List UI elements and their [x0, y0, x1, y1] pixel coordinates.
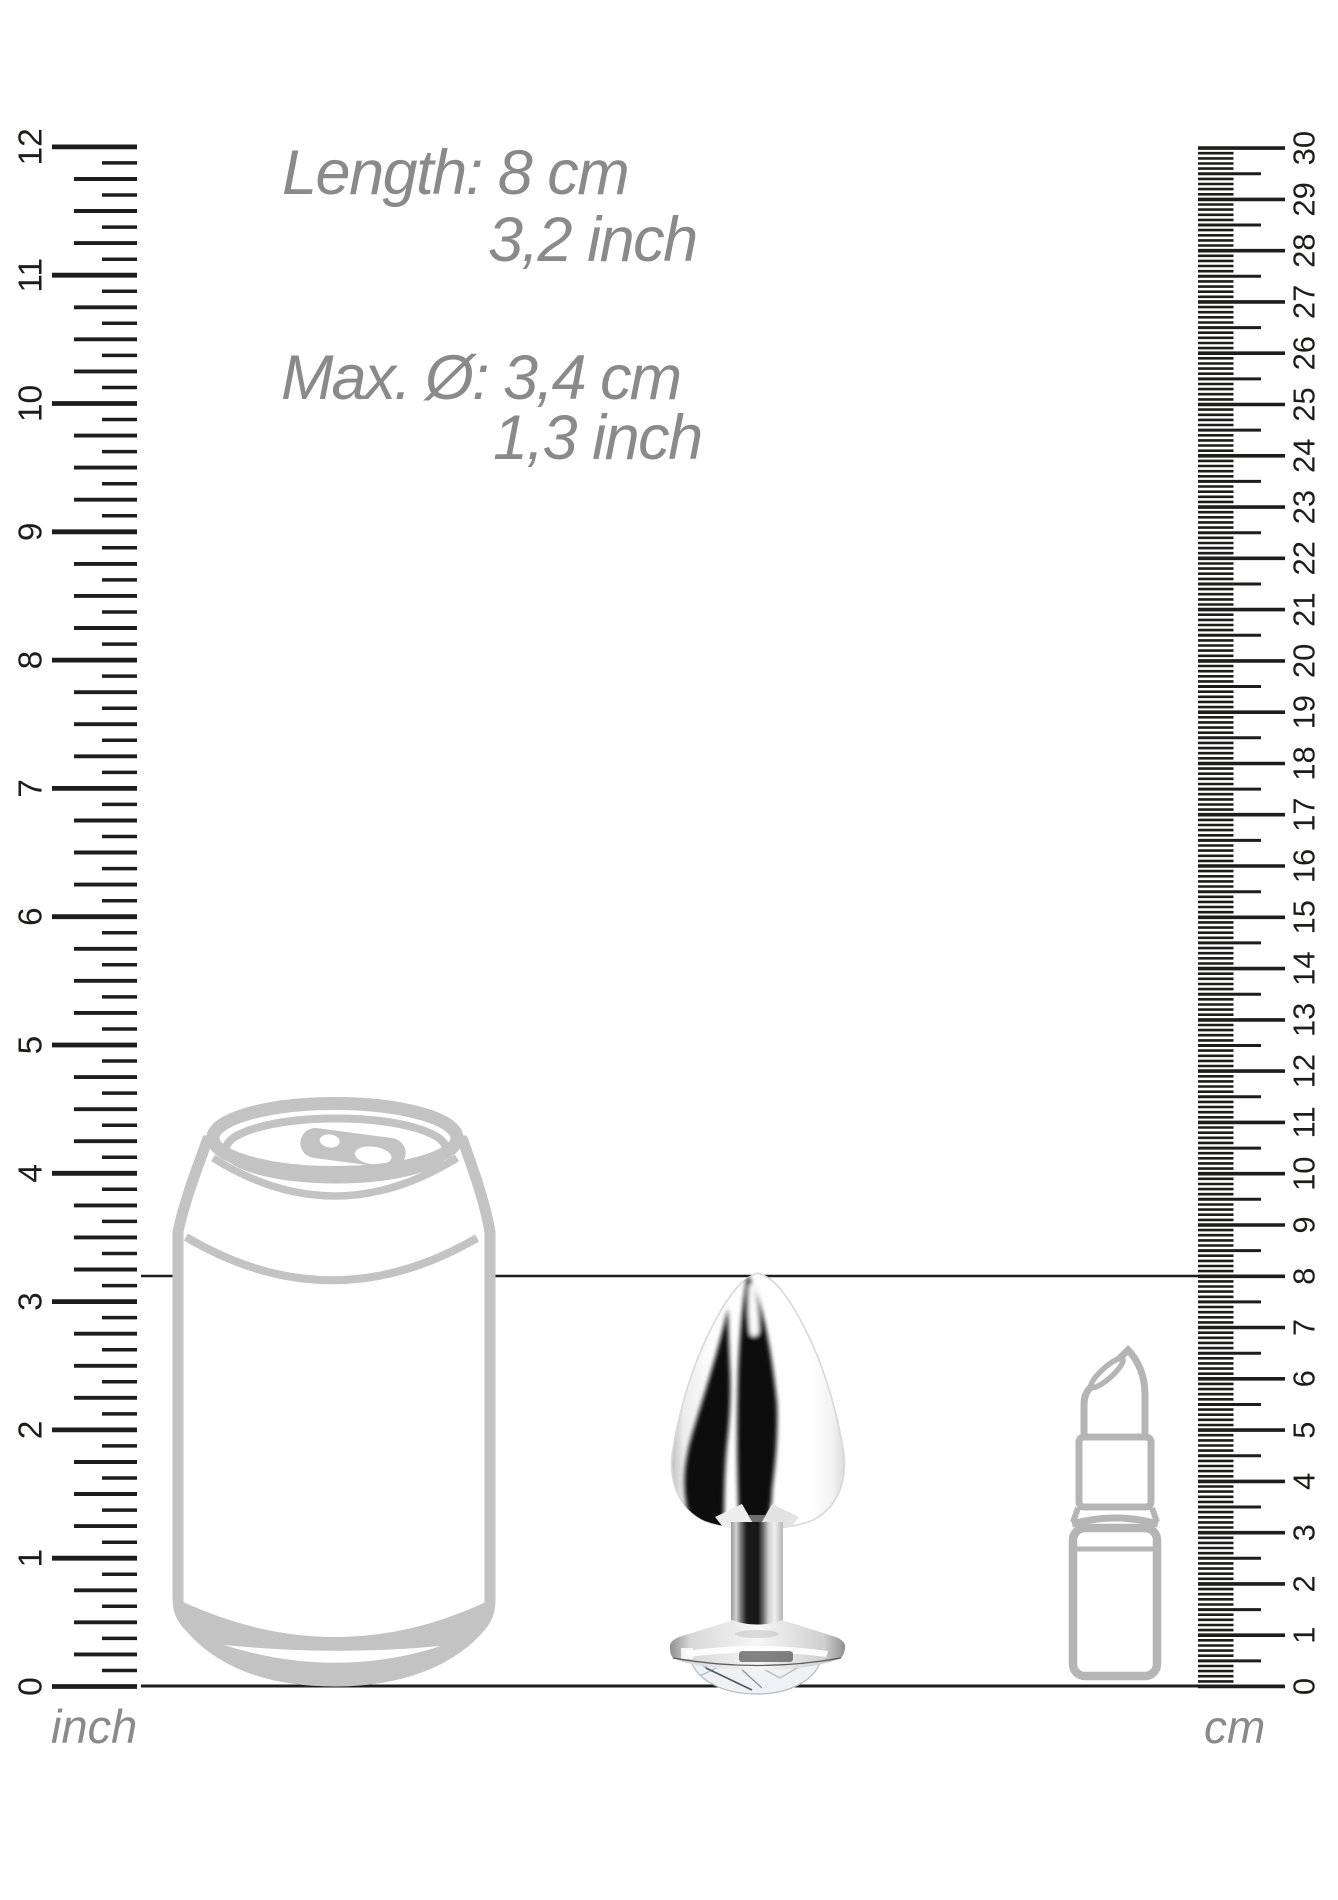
svg-text:11: 11 [1287, 1106, 1322, 1138]
svg-text:26: 26 [1287, 336, 1322, 370]
svg-text:3: 3 [13, 1292, 50, 1311]
svg-text:18: 18 [1287, 746, 1322, 780]
svg-text:Length: 8 cm: Length: 8 cm [282, 138, 628, 208]
svg-text:1: 1 [13, 1549, 50, 1568]
svg-text:0: 0 [13, 1677, 50, 1696]
svg-text:2: 2 [13, 1421, 50, 1440]
svg-text:13: 13 [1287, 1003, 1322, 1037]
svg-text:24: 24 [1287, 439, 1322, 473]
svg-text:cm: cm [1204, 1701, 1265, 1753]
svg-text:19: 19 [1287, 695, 1322, 729]
svg-text:6: 6 [1287, 1370, 1322, 1387]
svg-text:10: 10 [1287, 1156, 1322, 1190]
svg-text:27: 27 [1287, 285, 1322, 319]
svg-text:4: 4 [13, 1164, 50, 1183]
svg-text:5: 5 [13, 1036, 50, 1055]
svg-text:1: 1 [1287, 1627, 1322, 1644]
svg-text:9: 9 [1287, 1216, 1322, 1233]
svg-text:15: 15 [1287, 900, 1322, 934]
svg-text:10: 10 [13, 385, 50, 422]
svg-text:12: 12 [1287, 1054, 1322, 1088]
svg-text:6: 6 [13, 907, 50, 926]
svg-text:21: 21 [1287, 592, 1322, 626]
svg-text:14: 14 [1287, 951, 1322, 985]
svg-text:2: 2 [1287, 1575, 1322, 1592]
svg-text:29: 29 [1287, 182, 1322, 216]
svg-text:0: 0 [1287, 1678, 1322, 1695]
svg-text:8: 8 [13, 651, 50, 670]
svg-text:1,3 inch: 1,3 inch [493, 403, 702, 473]
svg-text:16: 16 [1287, 849, 1322, 883]
svg-text:12: 12 [13, 128, 50, 165]
svg-text:8: 8 [1287, 1268, 1322, 1285]
svg-text:11: 11 [13, 258, 50, 293]
svg-text:5: 5 [1287, 1421, 1322, 1438]
svg-text:30: 30 [1287, 131, 1322, 165]
svg-text:17: 17 [1287, 797, 1322, 831]
svg-text:23: 23 [1287, 490, 1322, 524]
svg-text:inch: inch [51, 1700, 137, 1753]
svg-text:22: 22 [1287, 541, 1322, 575]
svg-text:7: 7 [13, 779, 50, 798]
svg-text:3,2 inch: 3,2 inch [488, 205, 697, 275]
svg-text:9: 9 [13, 522, 50, 541]
svg-text:4: 4 [1287, 1473, 1322, 1490]
svg-text:20: 20 [1287, 644, 1322, 678]
svg-text:7: 7 [1287, 1319, 1322, 1336]
svg-text:3: 3 [1287, 1524, 1322, 1541]
svg-text:28: 28 [1287, 233, 1322, 267]
svg-text:25: 25 [1287, 387, 1322, 421]
